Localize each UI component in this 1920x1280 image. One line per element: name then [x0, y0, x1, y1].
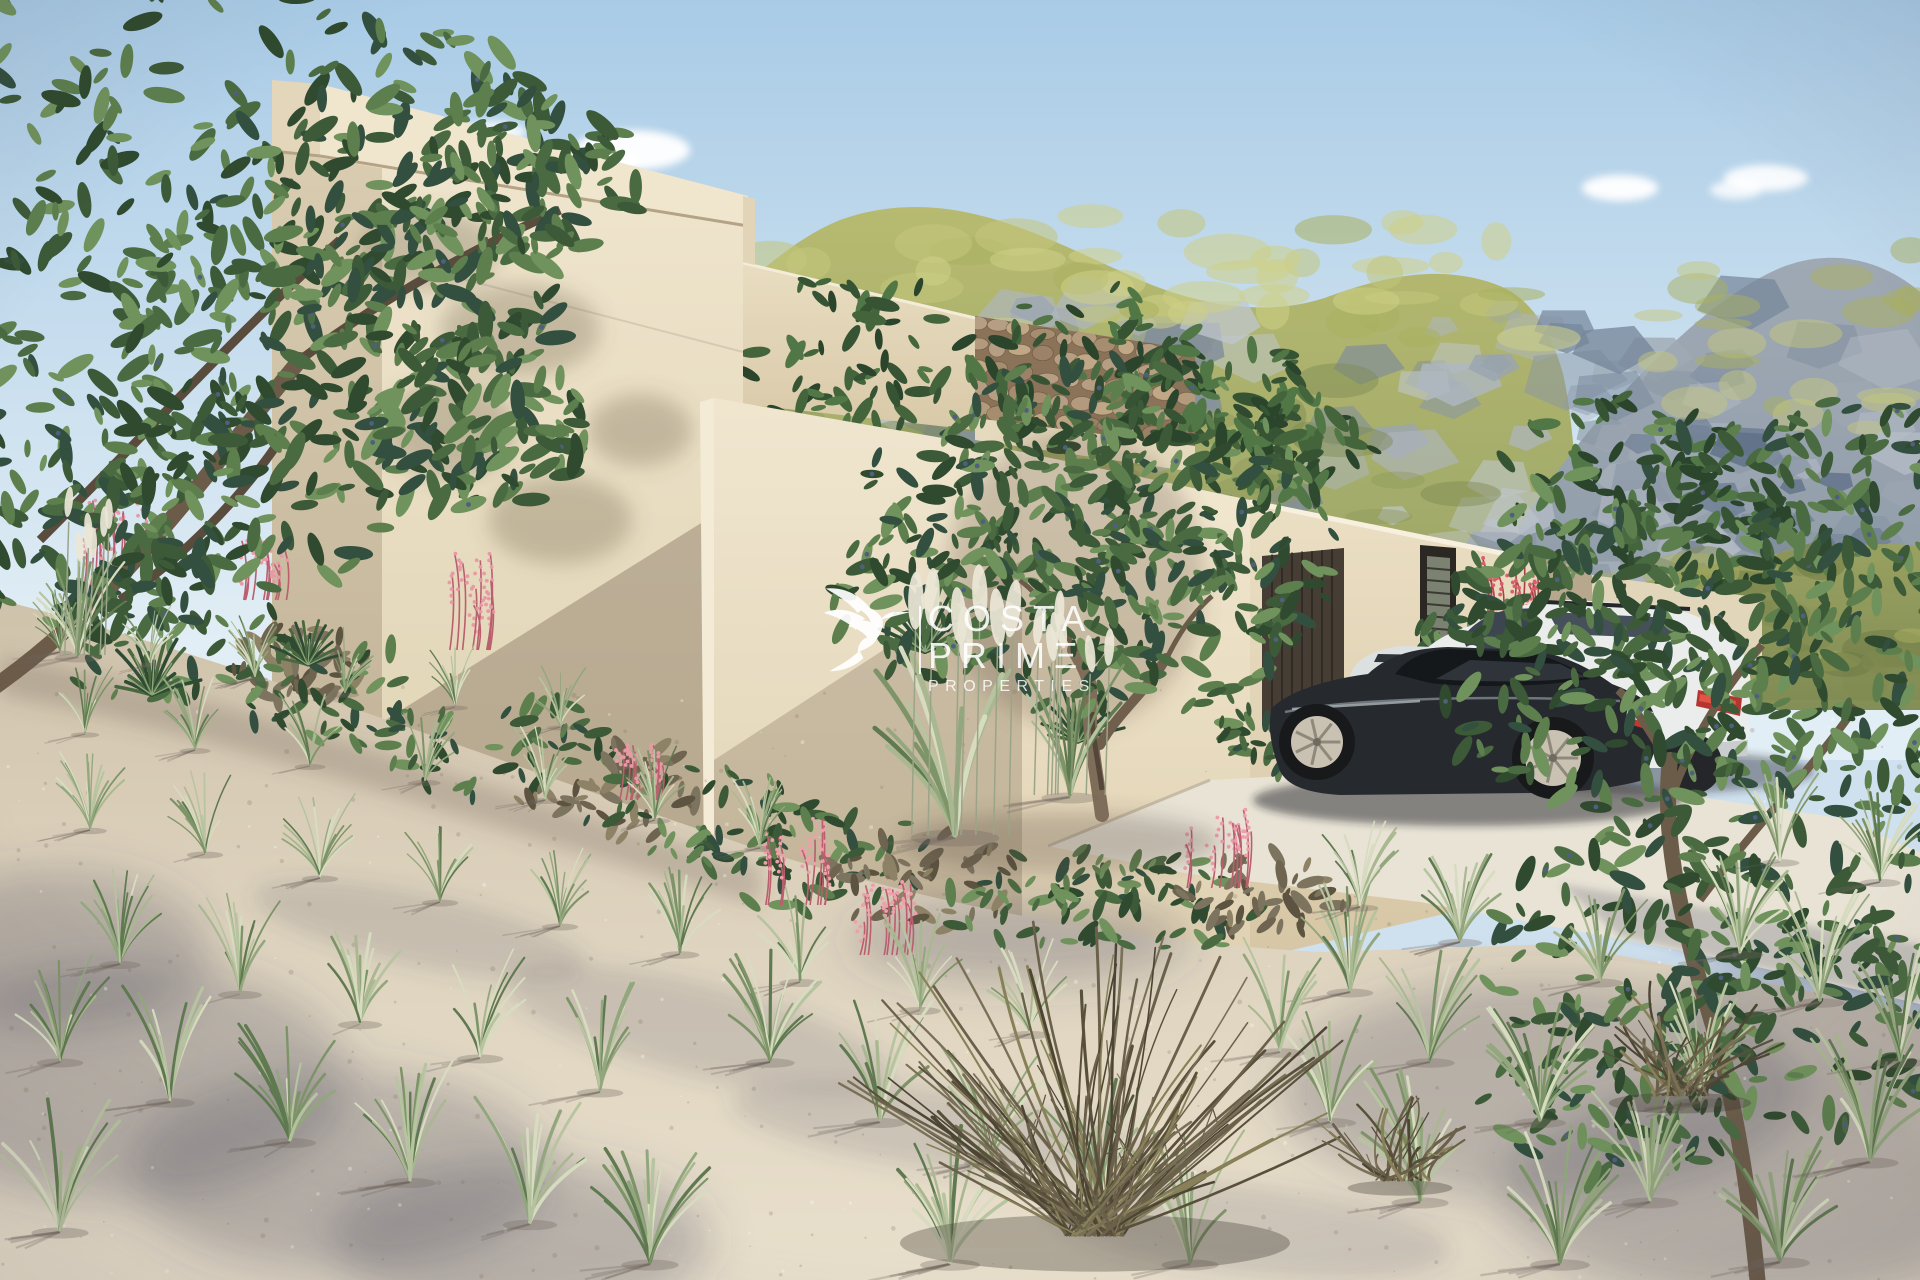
render-viewport: COSTA PRIMΞ PROPERTIES [0, 0, 1920, 1280]
vignette [0, 0, 1920, 1280]
scene-svg [0, 0, 1920, 1280]
